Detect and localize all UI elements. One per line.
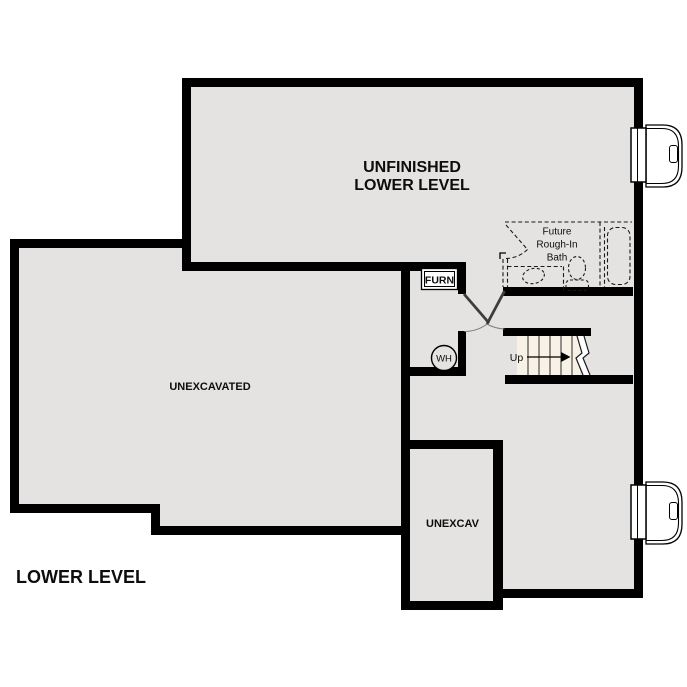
floor-plan-page: Up FURN: [0, 0, 687, 687]
furnace-label: FURN: [425, 275, 454, 287]
stairs-up-label: Up: [510, 352, 524, 364]
room-unfinished-label-line1: UNFINISHED: [363, 159, 461, 176]
furnace-box: FURN: [422, 269, 458, 290]
floor-plan-drawing: Up FURN: [0, 0, 687, 687]
water-heater-circle: WH: [432, 346, 457, 371]
stairs: Up: [510, 336, 590, 375]
room-unexcavated-label: UNEXCAVATED: [169, 381, 250, 393]
window-well-top-icon: [631, 125, 682, 187]
water-heater-label: WH: [436, 354, 452, 365]
window-well-bottom-icon: [631, 482, 682, 544]
plan-title: LOWER LEVEL: [16, 567, 146, 587]
future-bath-label-line2: Rough-In: [536, 240, 577, 251]
room-unfinished-label-line2: LOWER LEVEL: [354, 177, 470, 194]
room-unexcav-label: UNEXCAV: [426, 518, 480, 530]
future-bath-label-line3: Bath: [547, 253, 568, 264]
future-bath-label-line1: Future: [543, 227, 572, 238]
